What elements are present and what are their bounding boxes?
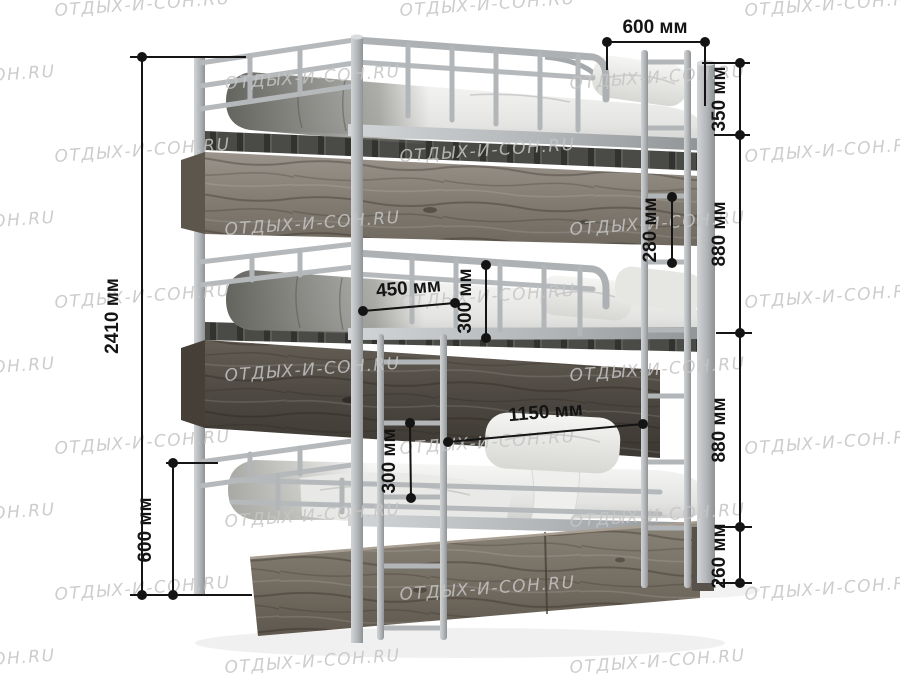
watermark-text: ОТДЫХ-И-СОН.RU bbox=[399, 0, 576, 21]
watermark-text: ОТДЫХ-И-СОН.RU bbox=[744, 135, 900, 167]
dim-label-left-600: 600 мм bbox=[135, 497, 156, 562]
watermark-text: ОТДЫХ-И-СОН.RU bbox=[0, 646, 56, 675]
dim-rail-300-bottom: 300 мм bbox=[379, 418, 416, 503]
watermark-text: ОТДЫХ-И-СОН.RU bbox=[744, 427, 900, 459]
product-dimension-diagram: ОТДЫХ-И-СОН.RUОТДЫХ-И-СОН.RUОТДЫХ-И-СОН.… bbox=[0, 0, 900, 675]
watermark-text: ОТДЫХ-И-СОН.RU bbox=[744, 573, 900, 605]
dim-label-880-lower: 880 мм bbox=[709, 397, 730, 462]
watermark-text: ОТДЫХ-И-СОН.RU bbox=[54, 0, 231, 21]
front-left-post bbox=[351, 36, 363, 643]
dim-label-top-600: 600 мм bbox=[622, 17, 687, 38]
bed-illustration bbox=[181, 35, 760, 659]
watermark-text: ОТДЫХ-И-СОН.RU bbox=[0, 500, 56, 532]
dim-label-260: 260 мм bbox=[709, 523, 730, 588]
dim-label-300-middle: 300 мм bbox=[455, 268, 476, 333]
watermark-text: ОТДЫХ-И-СОН.RU bbox=[0, 62, 56, 94]
watermark-text: ОТДЫХ-И-СОН.RU bbox=[744, 281, 900, 313]
dim-label-total-height: 2410 мм bbox=[102, 278, 123, 354]
watermark-text: ОТДЫХ-И-СОН.RU bbox=[0, 354, 56, 386]
watermark-text: ОТДЫХ-И-СОН.RU bbox=[744, 0, 900, 21]
bunk-bed-diagram-canvas: ОТДЫХ-И-СОН.RUОТДЫХ-И-СОН.RUОТДЫХ-И-СОН.… bbox=[0, 0, 900, 675]
dim-rail-300-middle: 300 мм bbox=[455, 260, 491, 343]
dim-label-350: 350 мм bbox=[709, 66, 730, 131]
dim-label-880-upper: 880 мм bbox=[709, 201, 730, 266]
dim-rung-280: 280 мм bbox=[640, 192, 677, 268]
dim-label-300-bottom: 300 мм bbox=[379, 428, 400, 493]
dim-base-260: 260 мм bbox=[709, 523, 752, 588]
watermark-text: ОТДЫХ-И-СОН.RU bbox=[0, 208, 56, 240]
dim-label-280: 280 мм bbox=[640, 197, 661, 262]
